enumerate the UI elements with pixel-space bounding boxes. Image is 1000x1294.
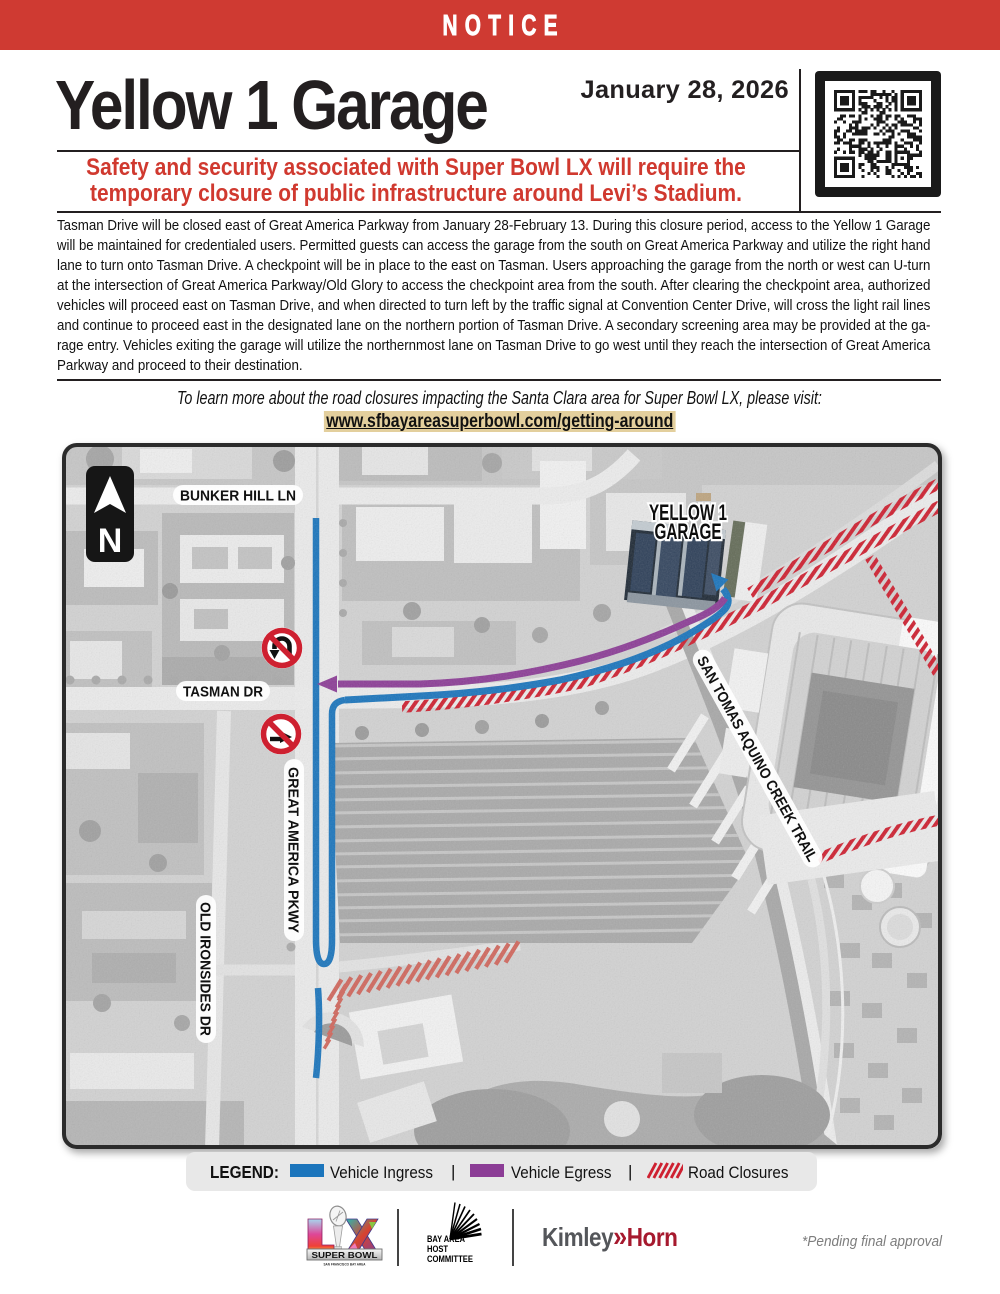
- svg-text:COMMITTEE: COMMITTEE: [427, 1254, 473, 1265]
- svg-text:BUNKER HILL LN: BUNKER HILL LN: [180, 488, 296, 505]
- svg-text:GREAT AMERICA PKWY: GREAT AMERICA PKWY: [285, 767, 302, 933]
- svg-text:OLD IRONSIDES DR: OLD IRONSIDES DR: [197, 902, 214, 1036]
- svg-text:TASMAN DR: TASMAN DR: [183, 684, 263, 701]
- svg-text:N: N: [98, 522, 123, 560]
- svg-text:SAN FRANCISCO BAY AREA: SAN FRANCISCO BAY AREA: [324, 1263, 366, 1267]
- svg-text:SUPER BOWL: SUPER BOWL: [312, 1250, 378, 1260]
- svg-text:GARAGE: GARAGE: [655, 519, 722, 544]
